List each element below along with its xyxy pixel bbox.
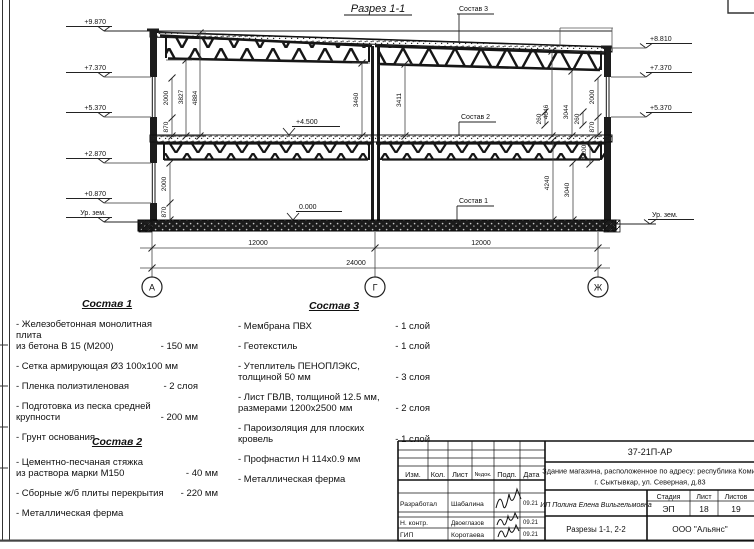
span-dimensions: 12000 12000 24000	[140, 232, 610, 277]
axis-zh: Ж	[594, 283, 603, 293]
ground-slab	[138, 220, 616, 231]
level-0000: 0.000	[299, 204, 317, 211]
floor-truss-bay2	[376, 143, 606, 160]
signatures	[496, 489, 521, 537]
section-title: Разрез 1-1	[351, 3, 406, 15]
dim-4240: 4240	[544, 175, 551, 190]
composition-list-1: Состав 1 - Железобетонная монолитная пли…	[16, 299, 198, 452]
list-item: - Пароизоляция для плоских кровель - 1 с…	[238, 423, 430, 445]
composition-list-3: Состав 3 - Мембрана ПВХ - 1 слой - Геоте…	[238, 301, 430, 494]
dim-2000-f2-right: 2000	[589, 89, 596, 104]
row-name-shabalina: Шабалина	[451, 500, 484, 508]
list-item: - Сетка армирующая Ø3 100x100 мм	[16, 361, 198, 372]
row-date-2: 09.21	[523, 520, 539, 526]
elev-left-2870: +2.870	[84, 151, 106, 158]
elev-left-ground: Ур. зем.	[80, 210, 106, 217]
list-item: - Геотекстиль - 1 слой	[238, 341, 430, 352]
row-date-1: 09.21	[523, 501, 539, 507]
list-item: - Профнастил Н 114x0.9 мм	[238, 454, 430, 465]
leader-sostav1: Состав 1	[459, 198, 488, 205]
list-item: - Сборные ж/б плиты перекрытия - 220 мм	[16, 488, 218, 499]
list-item: - Утеплитель ПЕНОПЛЭКС, толщиной 50 мм -…	[238, 361, 430, 383]
elev-right-ground: Ур. зем.	[652, 212, 678, 219]
axis-a: А	[149, 283, 155, 293]
row-role-nkontr: Н. контр.	[400, 520, 428, 527]
dim-2000-f2-left: 2000	[163, 90, 170, 105]
client-name: ИП Полина Елена Вильгельмовна	[540, 502, 652, 509]
col-podp: Подп.	[497, 470, 516, 479]
dim-4046: 4046	[543, 104, 550, 119]
title-block: 37-21П-АР Здание магазина, расположенное…	[398, 441, 754, 541]
list-item: - Лист ГВЛВ, толщиной 12.5 мм, размерами…	[238, 392, 430, 414]
row-role-razrabotal: Разработал	[400, 500, 437, 508]
elev-left-9870: +9.870	[84, 19, 106, 26]
dim-870-f1-left: 870	[161, 206, 168, 217]
level-4500: +4.500	[296, 119, 318, 126]
elev-right-5370: +5.370	[650, 105, 672, 112]
dim-3040: 3040	[564, 182, 571, 197]
row-date-3: 09.21	[523, 532, 539, 538]
list-item: - Мембрана ПВХ - 1 слой	[238, 321, 430, 332]
leader-sostav2: Состав 2	[461, 114, 490, 121]
row-name-dvoeglazov: Двоеглазов	[451, 520, 485, 527]
stage-value: ЭП	[662, 504, 674, 514]
col-kol: Кол.	[431, 470, 445, 479]
elev-right-7370: +7.370	[650, 65, 672, 72]
row-name-korotaeva: Коротаева	[451, 532, 484, 539]
list-item: - Металлическая ферма	[238, 474, 430, 485]
elev-left-5370: +5.370	[84, 105, 106, 112]
dim-4884: 4884	[192, 90, 199, 105]
dim-3460: 3460	[353, 92, 360, 107]
list-item: - Металлическая ферма	[16, 508, 218, 519]
list-item: - Железобетонная монолитная плита из бет…	[16, 319, 198, 352]
col-data: Дата	[523, 470, 540, 479]
sheets-total: 19	[731, 504, 741, 514]
floor-truss-bay1	[157, 143, 372, 160]
dim-span-1: 12000	[248, 240, 268, 247]
elev-left-7370: +7.370	[84, 65, 106, 72]
second-floor-slab	[150, 135, 612, 142]
list-item: - Пленка полиэтиленовая - 2 слоя	[16, 381, 198, 392]
axis-g: Г	[373, 283, 378, 293]
composition-1-title: Состав 1	[16, 299, 198, 310]
elev-left-0870: +0.870	[84, 191, 106, 198]
sheets-label: Листов	[725, 494, 748, 501]
project-address-line2: г. Сыктывкар, ул. Северная, д.83	[594, 478, 705, 487]
dim-3044: 3044	[563, 104, 570, 119]
dim-3411: 3411	[396, 93, 403, 107]
sheet-label: Лист	[696, 494, 712, 501]
middle-columns	[371, 46, 380, 220]
drawing-sheet: Разрез 1-1	[0, 0, 754, 549]
composition-3-title: Состав 3	[238, 301, 430, 312]
composition-leaders: Состав 3 Состав 2 Состав 1	[456, 6, 496, 226]
col-list: Лист	[452, 470, 469, 479]
stage-label: Стадия	[657, 494, 681, 501]
dim-3827: 3827	[178, 89, 185, 104]
dim-870-f2-right: 870	[589, 121, 596, 132]
list-item: - Подготовка из песка средней крупности …	[16, 401, 198, 423]
elev-right-8810: +8.810	[650, 36, 672, 43]
doc-number: 37-21П-АР	[628, 447, 673, 457]
leader-sostav3: Состав 3	[459, 6, 488, 13]
col-ndok: №док.	[475, 472, 492, 478]
project-address-line1: Здание магазина, расположенное по адресу…	[542, 467, 754, 476]
composition-2-title: Состав 2	[16, 437, 218, 448]
left-wall	[150, 30, 157, 222]
company-name: ООО "Альянс"	[672, 524, 728, 534]
dim-260-a: 260	[536, 113, 543, 124]
composition-list-2: Состав 2 - Цементно-песчаная стяжка из р…	[16, 437, 218, 528]
right-wall-window	[606, 77, 609, 117]
dim-span-2: 12000	[471, 240, 491, 247]
sheet-number: 18	[699, 504, 709, 514]
row-role-gip: ГИП	[400, 532, 414, 539]
drawing-name: Разрезы 1-1, 2-2	[566, 525, 625, 534]
dim-2000-f1-left: 2000	[161, 176, 168, 191]
dim-870-f2-left: 870	[163, 121, 170, 132]
dim-1200: 1200	[581, 144, 588, 159]
dim-total: 24000	[346, 260, 366, 267]
list-item: - Цементно-песчаная стяжка из раствора м…	[16, 457, 218, 479]
dim-260-b: 260	[574, 113, 581, 124]
axis-bubbles: А Г Ж	[142, 277, 608, 297]
